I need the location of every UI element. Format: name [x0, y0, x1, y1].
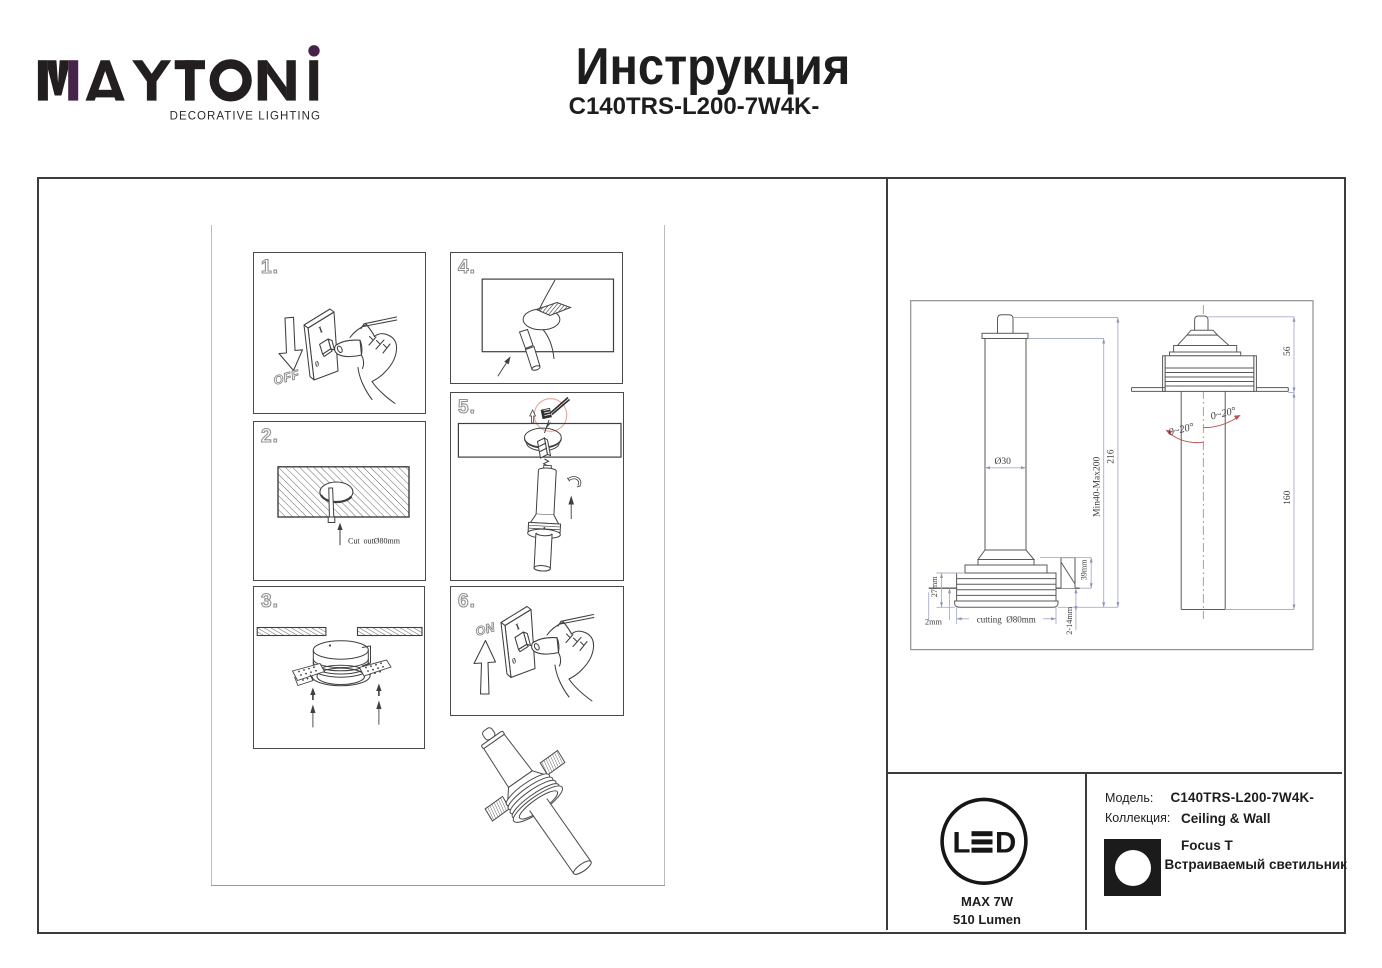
- svg-text:Min40-Max200: Min40-Max200: [1093, 456, 1103, 516]
- svg-text:2-14mm: 2-14mm: [1065, 606, 1074, 634]
- svg-text:cutting Ø80mm: cutting Ø80mm: [977, 615, 1036, 625]
- svg-text:2mm: 2mm: [925, 618, 942, 627]
- svg-text:39mm: 39mm: [1080, 559, 1089, 581]
- svg-text:216: 216: [1107, 449, 1117, 464]
- svg-text:27mm: 27mm: [930, 576, 939, 598]
- svg-text:D: D: [995, 827, 1016, 860]
- svg-text:56: 56: [1283, 346, 1293, 356]
- svg-text:L: L: [953, 827, 971, 860]
- svg-text:0~20°: 0~20°: [1168, 421, 1196, 438]
- svg-text:OFF: OFF: [272, 367, 301, 388]
- svg-text:ON: ON: [474, 620, 497, 639]
- svg-text:Cut outØ80mm: Cut outØ80mm: [348, 537, 401, 546]
- svg-text:Ø30: Ø30: [995, 457, 1012, 467]
- svg-text:160: 160: [1283, 490, 1293, 505]
- svg-text:DECORATIVE LIGHTING: DECORATIVE LIGHTING: [170, 111, 321, 123]
